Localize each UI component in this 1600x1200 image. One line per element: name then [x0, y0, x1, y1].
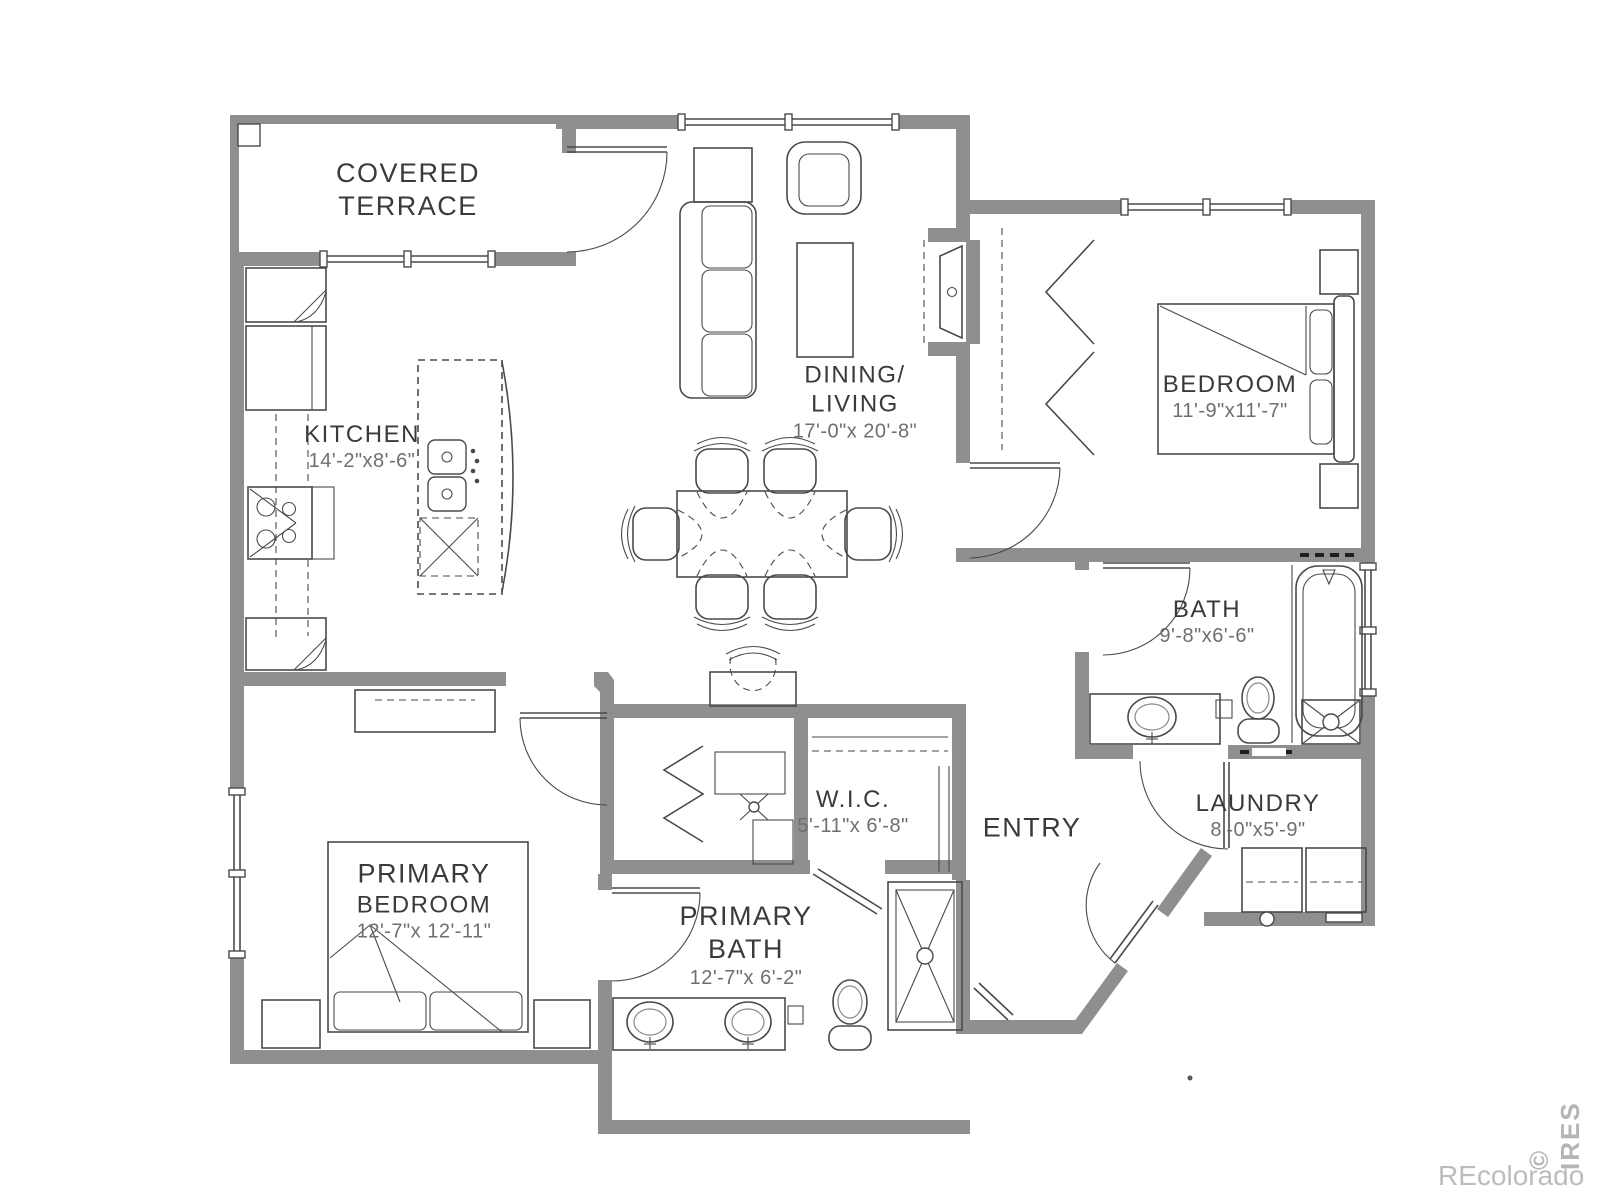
label-bath: BATH 9'-8"x6'-6": [1159, 595, 1254, 649]
wall-notch: [1252, 748, 1286, 756]
toilet-icon: [829, 980, 871, 1050]
room-dims: 9'-8"x6'-6": [1159, 624, 1254, 648]
dresser-icon: [355, 690, 495, 732]
fridge-icon: [246, 326, 326, 410]
doors: [520, 147, 1229, 981]
chair-icon: [694, 550, 750, 631]
room-dims: 12'-7"x 12'-11": [357, 920, 492, 944]
label-covered-terrace: COVERED TERRACE: [336, 157, 480, 223]
room-dims: 12'-7"x 6'-2": [679, 966, 812, 990]
corner-cabinet-icon: [246, 268, 326, 322]
sofa-icon: [680, 202, 756, 398]
label-kitchen: KITCHEN 14'-2"x8'-6": [304, 420, 420, 474]
room-dims: 8'-0"x5'-9": [1196, 818, 1321, 842]
bedroom-furniture: [1002, 228, 1358, 508]
corner-cabinet-icon: [246, 618, 326, 670]
room-dims: 14'-2"x8'-6": [304, 449, 420, 473]
room-dims: 17'-0"x 20'-8": [793, 419, 917, 443]
primary-bedroom-window-icon: [229, 788, 245, 958]
room-name: BEDROOM: [1163, 370, 1298, 399]
chair-icon: [822, 506, 903, 562]
room-name: KITCHEN: [304, 420, 420, 449]
kitchen-island-icon: [418, 360, 513, 594]
shower-icon: [888, 882, 962, 1030]
label-bedroom: BEDROOM 11'-9"x11'-7": [1163, 370, 1298, 424]
watermark-ires: © IRES: [1524, 1094, 1586, 1170]
water-heater-icon: [740, 794, 768, 820]
nightstand-icon: [1320, 250, 1358, 294]
armchair-icon: [787, 142, 861, 214]
washer-icon: [1242, 848, 1302, 912]
floorplan-canvas: COVERED TERRACE KITCHEN 14'-2"x8'-6" DIN…: [0, 0, 1600, 1200]
primary-bedroom-door-icon: [520, 713, 607, 805]
room-name: BEDROOM: [357, 891, 492, 920]
bath-fixtures: [1090, 555, 1362, 756]
room-name: LAUNDRY: [1196, 789, 1321, 818]
room-name: COVERED: [336, 157, 480, 190]
terrace-door-icon: [567, 147, 667, 252]
living-window-icon: [678, 114, 899, 130]
dishwasher-icon: [420, 518, 478, 576]
range-icon: [248, 487, 334, 559]
label-laundry: LAUNDRY 8'-0"x5'-9": [1196, 789, 1321, 843]
nightstand-icon: [262, 1000, 320, 1048]
floorplan-drawing: [0, 0, 1600, 1200]
kitchen-window-icon: [320, 251, 495, 267]
vent-icon: [1326, 913, 1362, 922]
room-name: PRIMARY: [679, 900, 812, 933]
room-dims: 11'-9"x11'-7": [1163, 399, 1298, 423]
dining-table-icon: [677, 491, 847, 577]
chair-icon: [694, 438, 750, 519]
utility-basin-icon: [1302, 700, 1360, 744]
vanity-sink-icon: [1090, 694, 1232, 744]
dining-furniture: [622, 438, 903, 707]
entry-door-icon: [1086, 863, 1158, 963]
coffee-table-icon: [797, 243, 853, 357]
primary-bath-fixtures: [613, 882, 1013, 1050]
label-wic: W.I.C. 5'-11"x 6'-8": [797, 785, 908, 839]
room-name: ENTRY: [983, 812, 1082, 845]
label-primary-bath: PRIMARY BATH 12'-7"x 6'-2": [679, 900, 812, 990]
drain-icon: [1260, 912, 1274, 926]
bedroom-window-icon: [1121, 199, 1291, 215]
shower-door-icon: [974, 983, 1013, 1020]
chair-icon: [762, 438, 818, 519]
cabinet-icon: [753, 820, 793, 864]
wic-door-icon: [813, 869, 882, 914]
tv-icon: [924, 240, 962, 344]
label-entry: ENTRY: [983, 812, 1082, 845]
double-vanity-icon: [613, 998, 803, 1050]
utility-closet: [664, 746, 793, 864]
sink-icon: [428, 477, 466, 511]
room-dims: 5'-11"x 6'-8": [797, 814, 908, 838]
dryer-icon: [1306, 848, 1366, 912]
toilet-icon: [1238, 677, 1279, 743]
stray-dot: [1188, 1076, 1193, 1081]
room-name: W.I.C.: [797, 785, 908, 814]
end-table-icon: [694, 148, 752, 202]
shelf-icon: [715, 752, 785, 794]
closet-icon: [1002, 228, 1094, 455]
room-name: BATH: [1159, 595, 1254, 624]
room-name: TERRACE: [336, 190, 480, 223]
sink-icon: [428, 440, 466, 474]
bedroom-door-icon: [970, 463, 1060, 558]
nightstand-icon: [534, 1000, 590, 1048]
desk-icon: [710, 647, 796, 707]
label-primary-bedroom: PRIMARY BEDROOM 12'-7"x 12'-11": [357, 858, 492, 945]
bifold-door-icon: [664, 746, 703, 842]
label-dining-living: DINING/ LIVING 17'-0"x 20'-8": [793, 361, 917, 444]
chair-icon: [762, 550, 818, 631]
room-name: BATH: [679, 933, 812, 966]
room-name: LIVING: [793, 390, 917, 419]
chair-icon: [622, 506, 703, 562]
terrace-post-icon: [238, 124, 260, 146]
room-name: PRIMARY: [357, 858, 492, 891]
room-name: DINING/: [793, 361, 917, 390]
nightstand-icon: [1320, 464, 1358, 508]
